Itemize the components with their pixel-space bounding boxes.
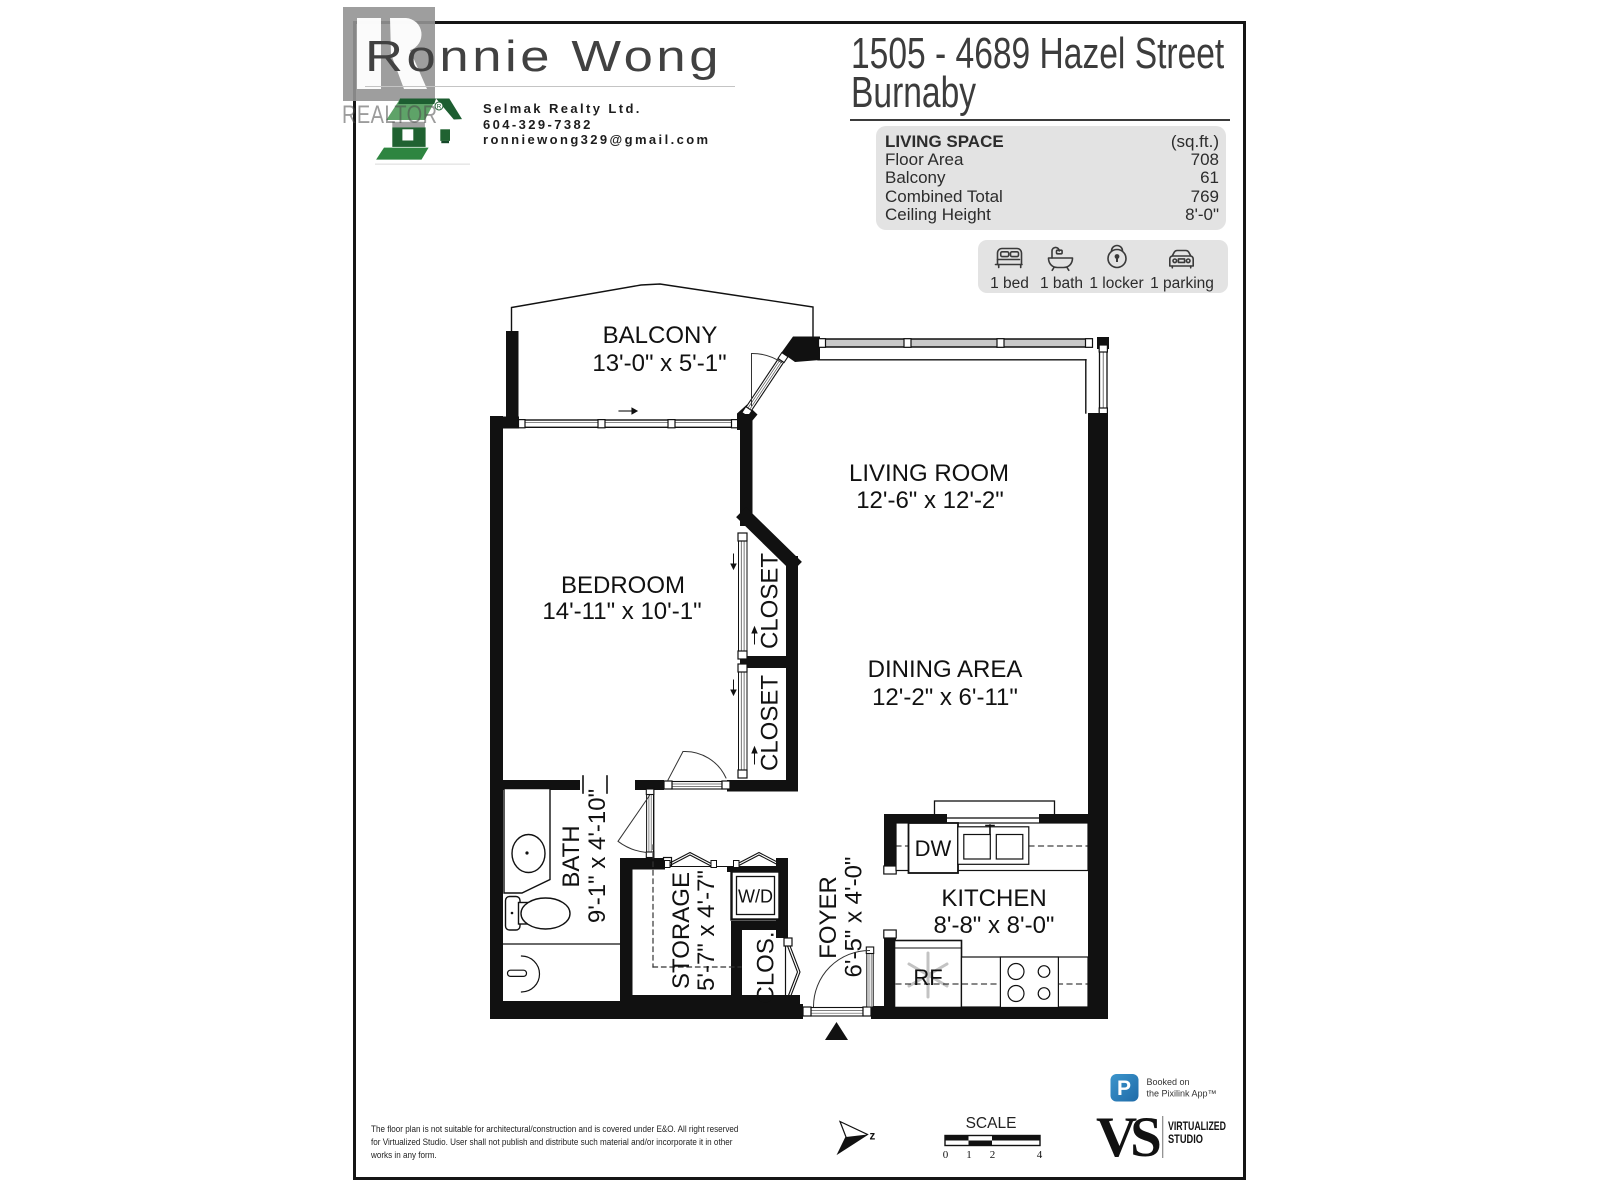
svg-text:CLOSET: CLOSET — [756, 553, 783, 649]
svg-text:14'-11" x 10'-1": 14'-11" x 10'-1" — [542, 598, 701, 625]
svg-text:8'-8" x 8'-0": 8'-8" x 8'-0" — [934, 912, 1055, 939]
svg-text:2: 2 — [990, 1149, 996, 1161]
svg-text:STORAGE: STORAGE — [668, 872, 695, 989]
svg-text:1 parking: 1 parking — [1150, 275, 1214, 292]
svg-text:1 bed: 1 bed — [990, 275, 1029, 292]
svg-text:13'-0" x 5'-1": 13'-0" x 5'-1" — [592, 350, 726, 377]
svg-text:Booked on: Booked on — [1147, 1077, 1190, 1087]
svg-text:DINING AREA: DINING AREA — [868, 656, 1023, 683]
svg-text:5'-7" x 4'-7": 5'-7" x 4'-7" — [693, 870, 720, 991]
svg-text:9'-1" x 4'-10": 9'-1" x 4'-10" — [584, 789, 611, 923]
svg-text:KITCHEN: KITCHEN — [941, 885, 1046, 912]
svg-text:4: 4 — [1037, 1149, 1043, 1161]
svg-text:CLOSET: CLOSET — [756, 675, 783, 771]
svg-text:1: 1 — [966, 1149, 972, 1161]
svg-text:BATH: BATH — [558, 825, 585, 887]
svg-text:VS: VS — [1096, 1106, 1160, 1169]
svg-text:W/D: W/D — [738, 887, 773, 907]
svg-text:the Pixilink App™: the Pixilink App™ — [1147, 1089, 1217, 1099]
svg-text:RF: RF — [913, 965, 942, 990]
svg-text:SCALE: SCALE — [966, 1115, 1017, 1132]
svg-text:FOYER: FOYER — [815, 876, 842, 959]
svg-text:1 bath: 1 bath — [1040, 275, 1083, 292]
svg-text:12'-2" x 6'-11": 12'-2" x 6'-11" — [872, 684, 1018, 711]
svg-text:BEDROOM: BEDROOM — [561, 572, 685, 599]
svg-text:1 locker: 1 locker — [1089, 275, 1143, 292]
svg-text:6'-5" x 4'-0": 6'-5" x 4'-0" — [840, 857, 867, 978]
svg-text:CLOS.: CLOS. — [752, 931, 779, 1003]
svg-text:0: 0 — [943, 1149, 949, 1161]
svg-text:12'-6" x 12'-2": 12'-6" x 12'-2" — [856, 487, 1004, 514]
svg-text:P: P — [1117, 1077, 1131, 1100]
svg-text:LIVING ROOM: LIVING ROOM — [849, 460, 1009, 487]
svg-text:DW: DW — [915, 836, 952, 861]
svg-text:BALCONY: BALCONY — [603, 322, 718, 349]
svg-text:VIRTUALIZED: VIRTUALIZED — [1168, 1119, 1226, 1133]
svg-text:STUDIO: STUDIO — [1168, 1132, 1203, 1146]
